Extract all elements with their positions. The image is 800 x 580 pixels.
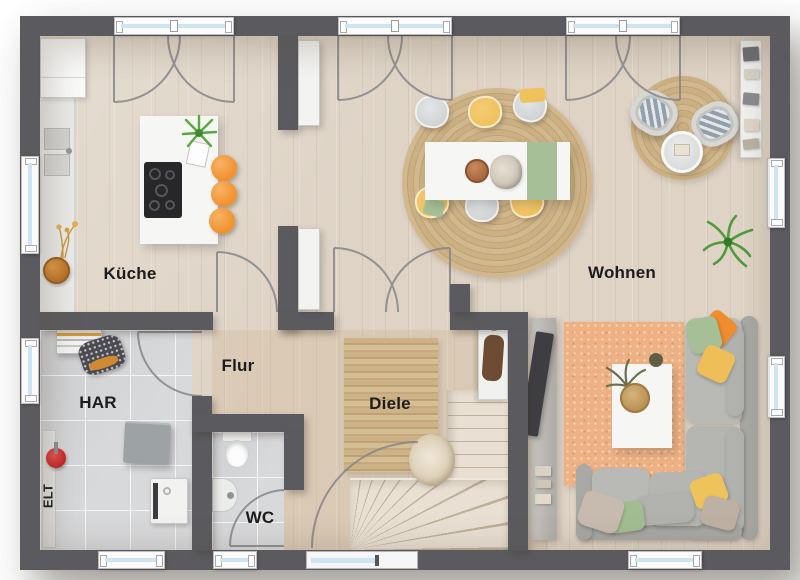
wall-kitchen-stub-foot: [278, 312, 334, 330]
window-wc-bottom: [213, 551, 257, 569]
wall-diele-top-nub: [450, 284, 470, 312]
window-living-right: [767, 356, 785, 418]
wall-wc-top: [192, 414, 304, 432]
room-label-har: HAR: [79, 393, 116, 413]
floor-wood: Küche Wohnen Flur Diele HAR WC ELT: [40, 36, 770, 550]
room-label-elt: ELT: [41, 484, 56, 508]
door-handle: [170, 20, 178, 32]
entrance-door: [306, 551, 418, 569]
door-handle: [391, 20, 399, 32]
window-glass: [28, 163, 32, 247]
window-har-left: [21, 338, 39, 404]
wall-har-top: [40, 312, 213, 330]
door-swing-arcs: [40, 36, 770, 550]
tall-cabinet-lower: [298, 228, 320, 310]
window-dining-top: [338, 17, 452, 35]
window-glass: [220, 558, 250, 562]
window-kitchen-top: [114, 17, 234, 35]
room-label-wohnen: Wohnen: [588, 263, 656, 283]
window-har-bottom: [98, 551, 165, 569]
tall-cabinet-upper: [298, 40, 320, 126]
room-label-flur: Flur: [222, 356, 255, 376]
door-handle: [619, 20, 627, 32]
room-label-wc: WC: [246, 508, 275, 528]
wall-wc-right: [284, 432, 304, 490]
wall-stair-living: [508, 330, 528, 550]
entrance-door-handle: [375, 555, 379, 566]
wall-kitchen-stub-upper: [278, 36, 298, 130]
window-kitchen-left: [21, 156, 39, 254]
window-living-bottom: [628, 551, 702, 569]
window-lounge-right: [767, 158, 785, 228]
window-glass: [774, 165, 778, 221]
window-glass: [105, 558, 158, 562]
wall-diele-top: [450, 312, 528, 330]
room-label-diele: Diele: [369, 394, 411, 414]
window-glass: [774, 363, 778, 411]
window-glass: [635, 558, 695, 562]
entrance-door-sidelight: [311, 558, 375, 563]
room-label-kueche: Küche: [104, 264, 157, 284]
window-living-top: [566, 17, 680, 35]
window-glass: [28, 345, 32, 397]
floor-plan: Küche Wohnen Flur Diele HAR WC ELT: [20, 16, 790, 570]
